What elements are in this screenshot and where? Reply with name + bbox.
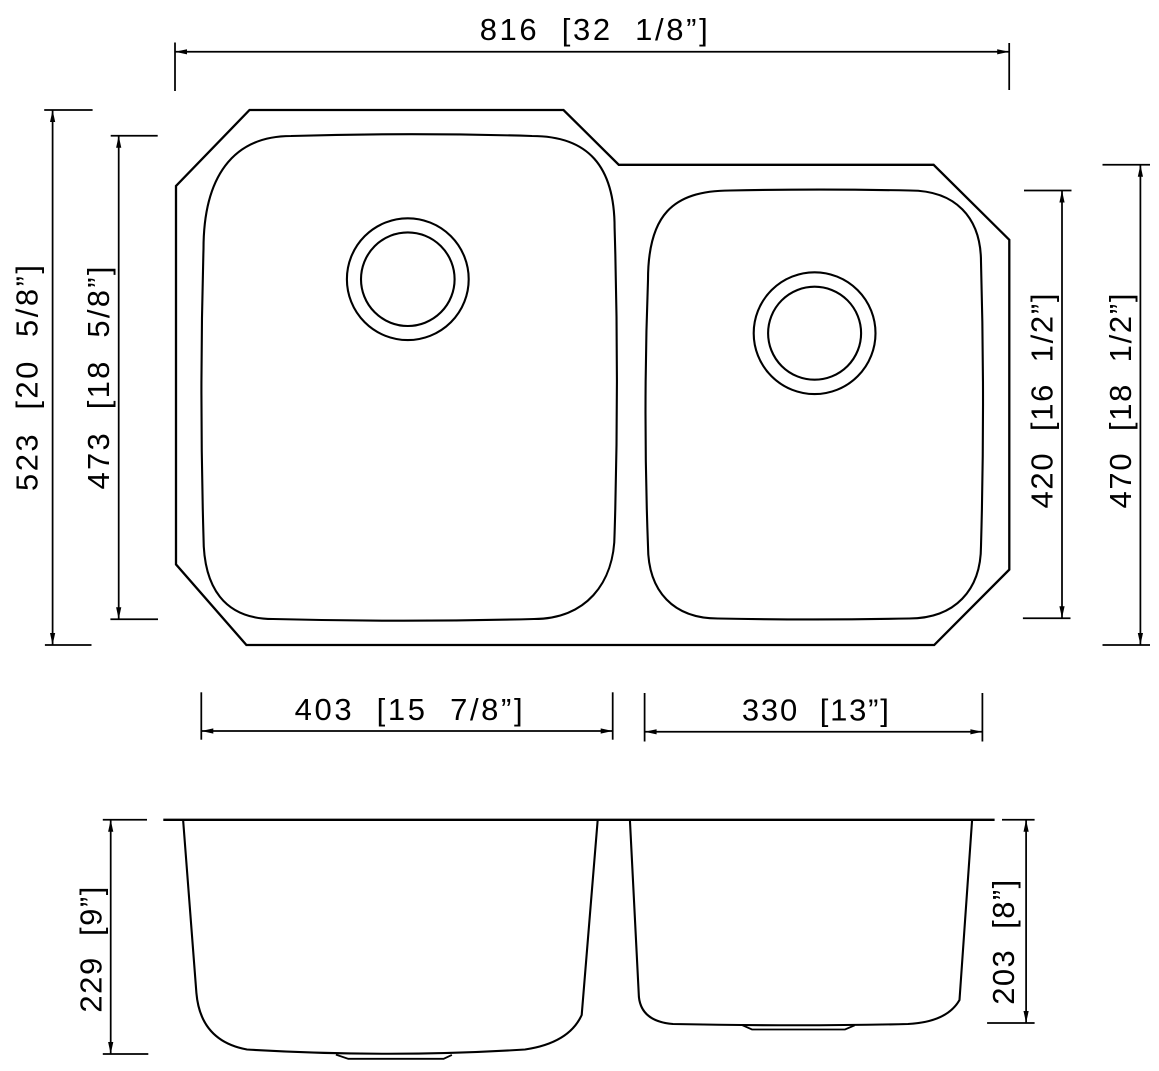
svg-text:420 [16 1/2”]: 420 [16 1/2”] [1025, 294, 1060, 509]
svg-text:523 [20 5/8”]: 523 [20 5/8”] [10, 265, 45, 491]
svg-text:816 [32 1/8”]: 816 [32 1/8”] [480, 12, 708, 47]
svg-text:473 [18 5/8”]: 473 [18 5/8”] [81, 267, 116, 490]
svg-text:203 [8”]: 203 [8”] [986, 880, 1021, 1005]
svg-text:403 [15 7/8”]: 403 [15 7/8”] [295, 692, 523, 727]
svg-text:470 [18 1/2”]: 470 [18 1/2”] [1103, 294, 1138, 509]
svg-text:229 [9”]: 229 [9”] [74, 887, 109, 1013]
svg-text:330 [13”]: 330 [13”] [742, 693, 889, 728]
